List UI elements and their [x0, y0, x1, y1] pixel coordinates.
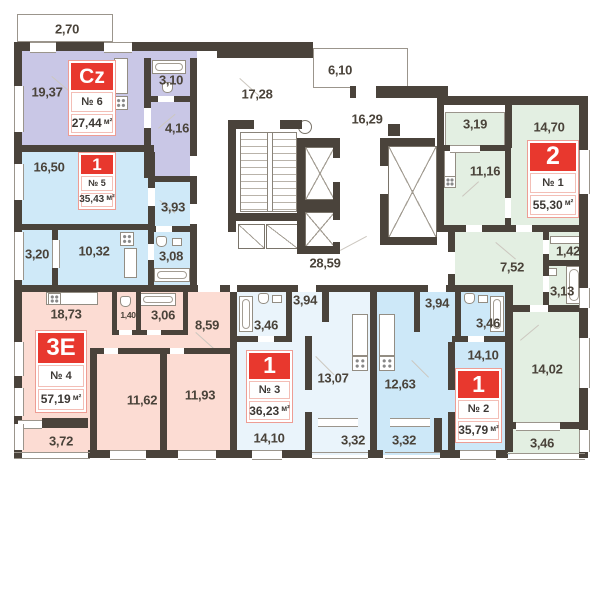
loggia-rail: [385, 452, 440, 459]
apartment-number: № 2: [458, 400, 499, 419]
wall: [42, 418, 88, 428]
window: [110, 450, 146, 460]
wall: [448, 412, 455, 452]
apartment-card-5[interactable]: 1 № 5 35,43м²: [78, 152, 116, 210]
room-dim: 11,62: [127, 393, 157, 408]
common-dim: 28,59: [309, 256, 340, 271]
door-gap: [468, 336, 484, 342]
wall: [286, 292, 292, 340]
room-dim: 14,70: [533, 120, 564, 135]
lift-door-gap: [380, 166, 388, 194]
door-gap: [543, 240, 549, 254]
wall: [505, 105, 512, 148]
apartment-area: 35,79м²: [458, 421, 499, 440]
apartment-type: 1: [458, 371, 499, 398]
leader-line: [340, 236, 367, 251]
wall: [297, 138, 305, 254]
window: [14, 388, 24, 416]
room-dim: 3,10: [159, 73, 183, 88]
wall: [434, 418, 442, 452]
bathtub: [154, 268, 190, 282]
room-dim: 3,46: [530, 436, 554, 451]
lift-door-gap: [333, 220, 340, 242]
room-dim: 3,19: [463, 117, 487, 132]
apartment-number: № 1: [530, 173, 576, 193]
apartment-card-6[interactable]: Cz № 6 27,44м²: [68, 60, 116, 136]
stove-icon: [352, 356, 368, 371]
window: [14, 86, 24, 132]
wall: [160, 354, 167, 452]
window: [579, 150, 590, 194]
bathtub: [140, 293, 176, 306]
kitchen-counter: [379, 314, 395, 356]
wall: [217, 42, 313, 58]
stove-icon: [444, 176, 456, 188]
door-gap: [190, 204, 197, 224]
window: [252, 450, 282, 460]
window: [579, 288, 590, 308]
wall: [322, 292, 329, 322]
loggia-rail: [312, 452, 368, 459]
wall: [183, 292, 188, 334]
apartment-number: № 5: [81, 176, 113, 190]
window: [579, 430, 590, 452]
window: [390, 418, 430, 427]
room-dim: 3,94: [425, 296, 449, 311]
common-dim: 17,28: [241, 87, 272, 102]
window: [318, 418, 358, 427]
apartment-number: № 6: [71, 92, 113, 111]
apartment-area: 27,44м²: [71, 114, 113, 133]
apartment-card-3[interactable]: 1 № 3 36,23м²: [246, 350, 293, 423]
common-dim: 6,10: [328, 63, 352, 78]
freight-elevator: [388, 146, 437, 238]
room-dim: 3,72: [49, 434, 73, 449]
door-gap: [258, 336, 274, 342]
room-dim: 3,13: [550, 284, 574, 299]
staircase: [240, 132, 297, 212]
door-gap: [144, 108, 151, 128]
door-gap: [448, 252, 455, 274]
wall: [14, 145, 154, 152]
apartment-type: 1: [249, 353, 290, 379]
room-dim: 16,50: [33, 160, 64, 175]
window: [30, 42, 56, 53]
wall: [414, 292, 420, 332]
wall: [20, 224, 148, 230]
kitchen-counter: [124, 248, 137, 278]
room-dim: 1,40: [120, 310, 135, 320]
sink: [172, 238, 182, 246]
lift-door-gap: [333, 158, 340, 182]
room-dim: 13,07: [317, 371, 348, 386]
apartment-type: 1: [81, 155, 113, 174]
wall: [448, 342, 455, 390]
door-gap: [148, 188, 155, 206]
apartment-type: 3E: [38, 333, 84, 363]
door-gap: [543, 276, 549, 292]
door-gap: [156, 226, 172, 232]
wall: [230, 292, 237, 452]
apartment-number: № 3: [249, 381, 290, 400]
kitchen-counter: [444, 150, 456, 178]
stove-icon: [48, 293, 61, 305]
wall: [452, 285, 513, 292]
toilet: [258, 293, 269, 304]
sink: [478, 295, 488, 303]
room-dim: 3,20: [25, 247, 49, 262]
room-dim: 3,08: [159, 249, 183, 264]
door-gap: [158, 96, 174, 102]
bathtub: [239, 296, 253, 332]
door-gap: [119, 330, 132, 335]
stove-icon: [379, 356, 395, 371]
room-dim: 3,46: [476, 316, 500, 331]
wall: [370, 285, 377, 452]
apartment-area: 35,43м²: [81, 193, 113, 207]
door-gap: [356, 86, 376, 98]
wall: [305, 336, 312, 390]
door-gap: [428, 285, 446, 292]
window: [579, 338, 590, 388]
apartment-card-4[interactable]: 3E № 4 57,19м²: [35, 330, 87, 413]
kitchen-counter: [114, 58, 128, 94]
wall: [513, 305, 585, 312]
window: [104, 42, 132, 53]
room-dim: 10,32: [78, 244, 109, 259]
common-dim: 16,29: [351, 112, 382, 127]
apartment-area: 57,19м²: [38, 389, 84, 410]
room-dim: 2,70: [55, 22, 79, 37]
wall: [90, 354, 97, 452]
apartment-number: № 4: [38, 365, 84, 386]
room-dim: 14,10: [467, 348, 498, 363]
wall: [303, 200, 335, 212]
sink: [272, 295, 282, 303]
elevator: [305, 147, 335, 200]
door-gap: [147, 330, 161, 335]
room-dim: 3,46: [254, 318, 278, 333]
room-dim: 3,93: [161, 200, 185, 215]
room-dim: 11,16: [470, 164, 500, 179]
room-dim: 18,73: [50, 307, 81, 322]
window: [516, 422, 560, 431]
door-gap: [198, 285, 220, 292]
toilet: [464, 293, 475, 304]
door-gap: [505, 198, 511, 218]
door-gap: [530, 305, 548, 312]
loggia-rail: [14, 452, 90, 459]
room-dim: 12,63: [384, 377, 415, 392]
loggia-rail: [507, 453, 585, 460]
room-dim: 7,52: [500, 260, 524, 275]
apartment-area: 36,23м²: [249, 401, 290, 420]
room-dim: 1,42: [556, 244, 580, 259]
door-gap: [148, 244, 154, 260]
door-gap: [254, 120, 280, 129]
room-dim: 11,93: [185, 388, 215, 403]
window: [14, 164, 24, 200]
kitchen-counter: [352, 314, 368, 356]
wall: [136, 292, 141, 334]
wall: [380, 237, 437, 245]
apartment-card-2[interactable]: 1 № 2 35,79м²: [455, 368, 502, 443]
window: [14, 342, 24, 376]
door-gap: [170, 348, 184, 354]
wall: [437, 96, 444, 232]
elevator: [305, 212, 335, 247]
toilet: [156, 236, 167, 247]
storage-closet: [266, 224, 298, 249]
room-dim: 3,32: [341, 433, 365, 448]
window: [178, 450, 216, 460]
room-dim: 3,32: [392, 433, 416, 448]
wall: [380, 138, 435, 146]
wall: [190, 230, 197, 292]
room-dim: 14,02: [531, 362, 562, 377]
window: [52, 240, 60, 268]
apartment-area: 55,30м²: [530, 195, 576, 215]
window: [450, 145, 480, 153]
garbage-chute: [388, 124, 400, 136]
room-dim: 14,10: [253, 431, 284, 446]
wall: [543, 260, 585, 266]
door-gap: [516, 225, 532, 232]
stove-icon: [120, 232, 134, 246]
room-dim: 8,59: [195, 318, 219, 333]
room-dim: 4,16: [165, 121, 189, 136]
room-dim: 19,37: [31, 85, 62, 100]
wall: [228, 213, 302, 221]
room-dim: 3,94: [293, 293, 317, 308]
apartment-card-1[interactable]: 2 № 1 55,30м²: [527, 140, 579, 218]
window: [460, 450, 496, 460]
wall: [455, 292, 461, 338]
wall: [443, 225, 585, 232]
wall: [305, 412, 312, 452]
stove-icon: [114, 96, 128, 110]
apartment-type: Cz: [71, 63, 113, 90]
door-gap: [190, 156, 197, 176]
door-gap: [104, 348, 118, 354]
toilet: [120, 296, 131, 307]
window: [14, 424, 24, 450]
window: [14, 232, 24, 280]
wall: [443, 96, 585, 105]
door-gap: [298, 285, 316, 292]
room-dim: 3,06: [151, 308, 175, 323]
floor-plan: 2,70 19,37 3,10 4,16 16,50 3,93 3,20 10,…: [0, 0, 600, 600]
wall: [112, 292, 117, 334]
apartment-type: 2: [530, 143, 576, 171]
door-gap: [466, 225, 482, 232]
storage-closet: [238, 224, 265, 249]
